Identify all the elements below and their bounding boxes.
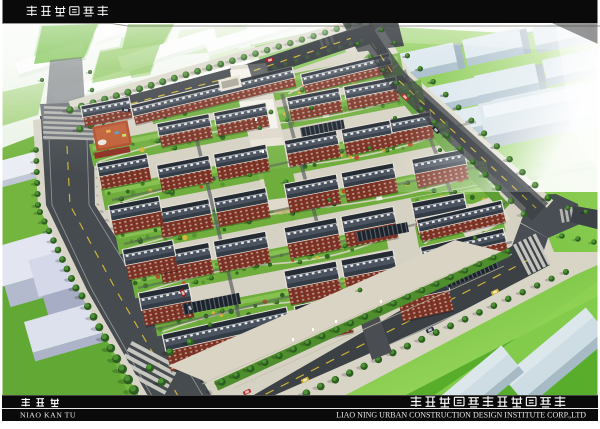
svg-text:NIAO KAN TU: NIAO KAN TU	[20, 411, 76, 420]
svg-text:LIAO NING URBAN CONSTRUCTION D: LIAO NING URBAN CONSTRUCTION DESIGN INST…	[336, 411, 586, 420]
